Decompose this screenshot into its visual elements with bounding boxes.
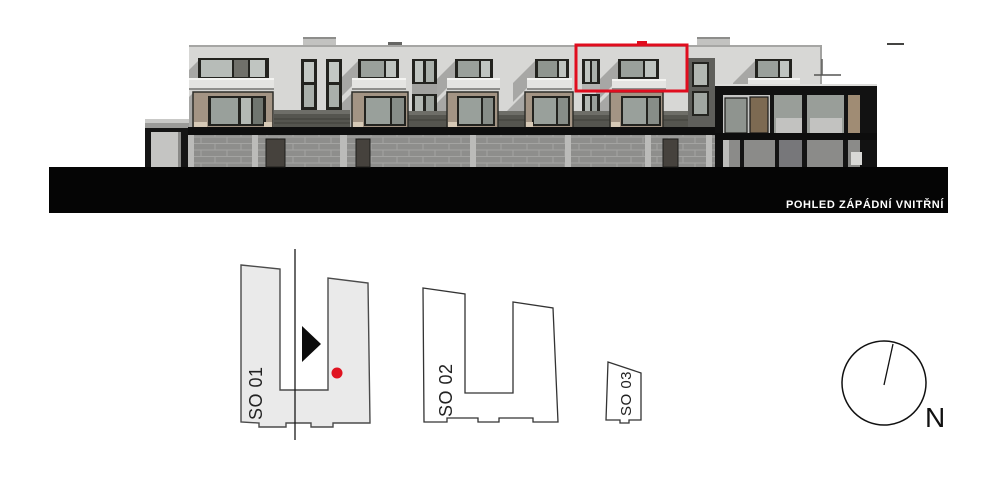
right-annex-section — [715, 84, 877, 167]
floor-slab — [188, 127, 715, 135]
building-so03[interactable]: SO 03 — [606, 362, 641, 423]
left-annex — [145, 119, 189, 167]
building-so02[interactable]: SO 02 — [423, 288, 558, 422]
view-direction-arrow-icon — [302, 326, 321, 362]
north-compass-icon: N — [842, 341, 945, 433]
basement-level — [188, 133, 715, 167]
building-so01-label: SO 01 — [246, 366, 266, 420]
building-so01[interactable]: SO 01 — [241, 249, 370, 440]
north-label: N — [925, 402, 945, 433]
drawing-sheet: POHLED ZÁPÁDNÍ VNITŘNÍ SO 01 SO 02 SO 03… — [0, 0, 1000, 483]
building-so03-label: SO 03 — [618, 371, 635, 416]
building-so02-label: SO 02 — [436, 363, 456, 417]
site-plan: SO 01 SO 02 SO 03 N — [241, 249, 945, 440]
unit-location-dot — [332, 368, 343, 379]
elevation-drawing: POHLED ZÁPÁDNÍ VNITŘNÍ — [49, 37, 948, 213]
elevation-caption: POHLED ZÁPÁDNÍ VNITŘNÍ — [786, 198, 944, 211]
